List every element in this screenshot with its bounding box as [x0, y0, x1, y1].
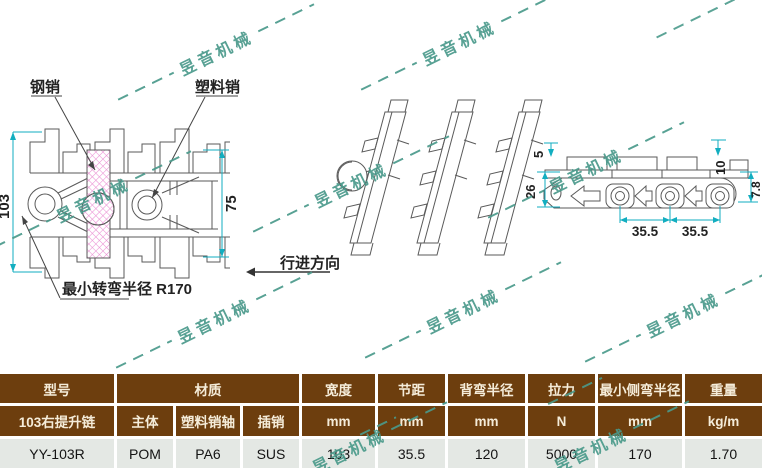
value-back-bend-radius: 120 [448, 439, 525, 468]
dim-link-width: 75 [223, 195, 240, 212]
subheader-back-bend-unit: mm [448, 406, 525, 436]
steel-pin-label: 钢销 [30, 78, 60, 96]
dim-offset: 7.8 [749, 181, 762, 198]
min-turn-radius-label: 最小转弯半径 R170 [62, 280, 192, 298]
dim-tab-height: 5 [531, 151, 546, 158]
value-weight: 1.70 [685, 439, 762, 468]
subheader-weight-unit: kg/m [685, 406, 762, 436]
plastic-pin-label: 塑料销 [195, 78, 240, 96]
subheader-insert-pin: 插销 [243, 406, 299, 436]
value-pin-material: PA6 [176, 439, 240, 468]
subheader-body: 主体 [117, 406, 173, 436]
dim-overall-width: 103 [0, 194, 13, 219]
header-back-bend-radius: 背弯半径 [448, 374, 525, 403]
subheader-plastic-pin: 塑料销轴 [176, 406, 240, 436]
iso-view-drawing: 行进方向 [246, 100, 543, 277]
header-weight: 重量 [685, 374, 762, 403]
value-insert-material: SUS [243, 439, 299, 468]
dim-pitch-b: 35.5 [682, 224, 709, 239]
header-material: 材质 [117, 374, 299, 403]
subheader-tension-unit: N [528, 406, 595, 436]
header-model: 型号 [0, 374, 114, 403]
subheader-series: 103右提升链 [0, 406, 114, 436]
value-model: YY-103R [0, 439, 114, 468]
header-width: 宽度 [302, 374, 375, 403]
dim-pitch-a: 35.5 [632, 224, 659, 239]
dim-top-height: 10 [713, 161, 728, 175]
value-body-material: POM [117, 439, 173, 468]
spec-sheet-page: 103 75 钢销 塑料销 最小转弯半径 R170 [0, 0, 762, 468]
